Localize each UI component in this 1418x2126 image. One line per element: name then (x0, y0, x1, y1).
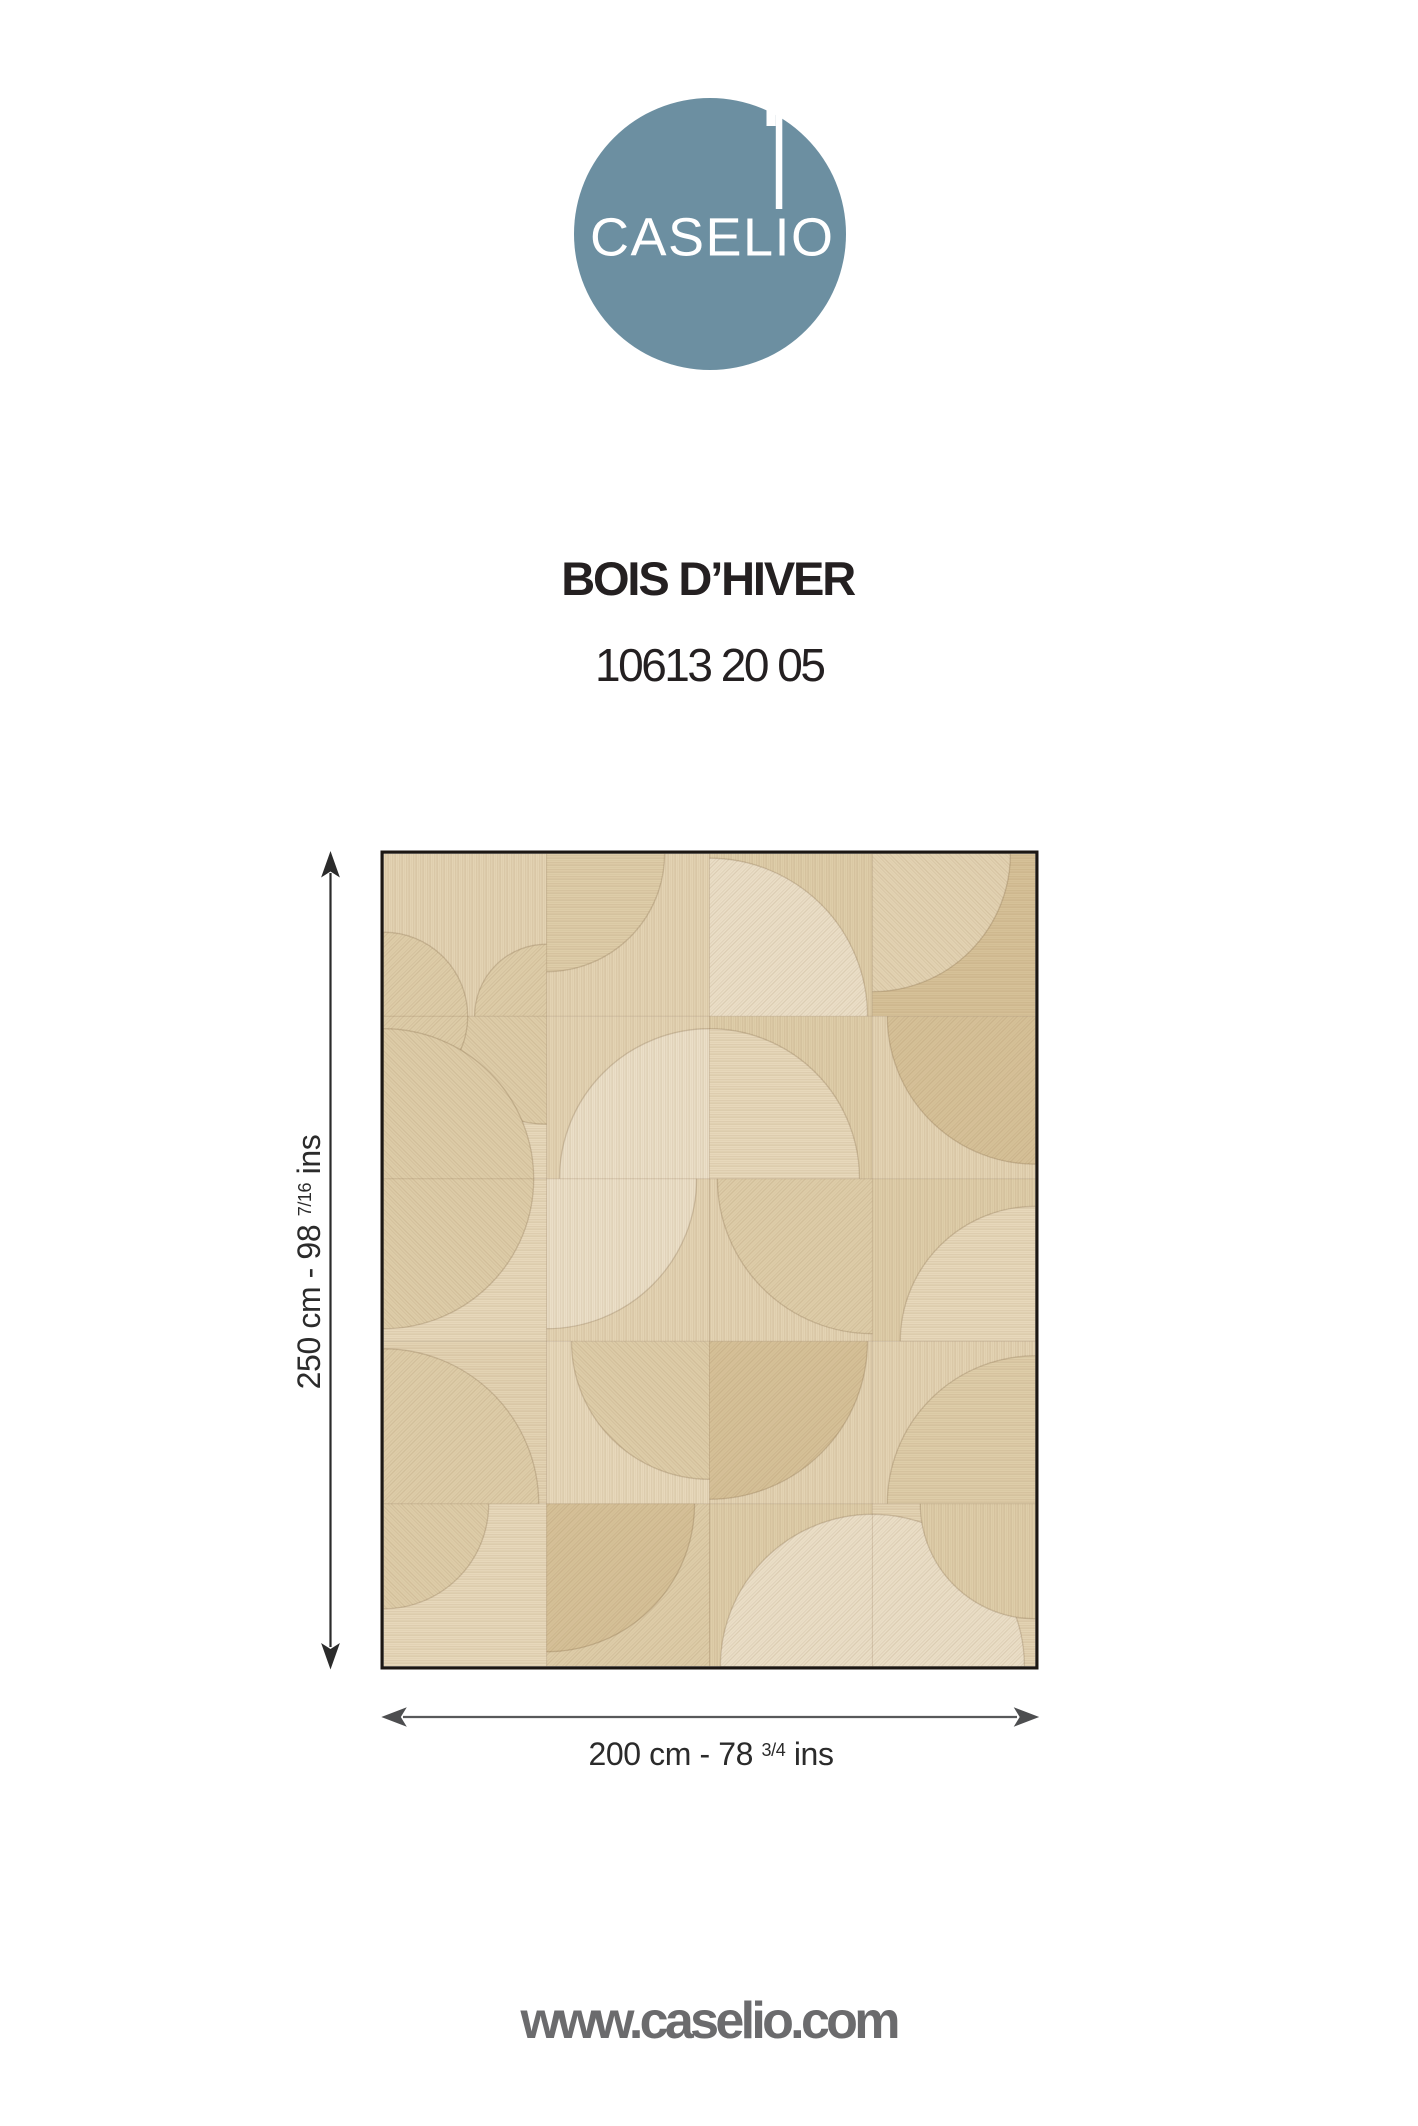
svg-text:250 cm - 98 7/16 ins: 250 cm - 98 7/16 ins (291, 1135, 327, 1390)
svg-text:www.caselio.com: www.caselio.com (520, 1992, 901, 2050)
svg-text:BOIS D’HIVER: BOIS D’HIVER (561, 552, 856, 605)
svg-text:10613 20 05: 10613 20 05 (595, 639, 826, 691)
svg-text:200 cm - 78 3/4 ins: 200 cm - 78 3/4 ins (588, 1736, 833, 1772)
svg-text:CASELIO: CASELIO (590, 208, 835, 268)
